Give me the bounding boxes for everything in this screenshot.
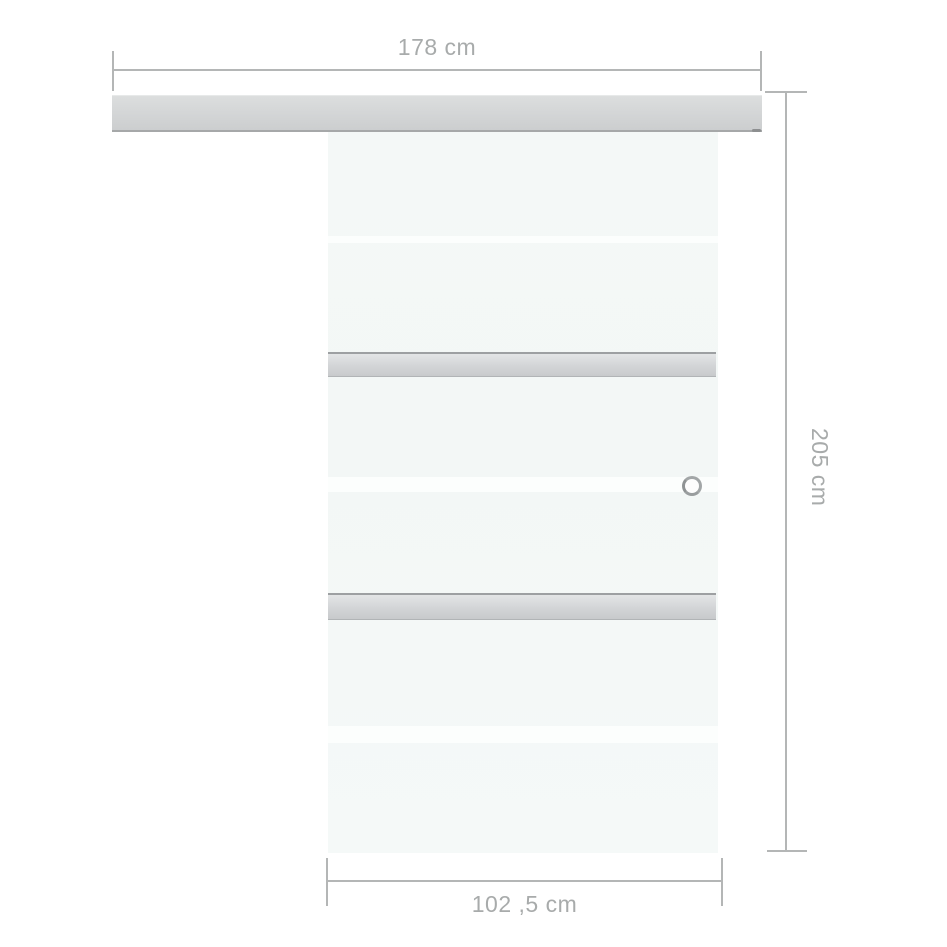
door-width-dimension-line [327,880,722,882]
door-height-dimension-line [785,92,787,851]
door-height-dimension-label: 205 cm [806,428,833,506]
track-width-dimension-tick-left [112,51,114,91]
track-width-dimension-label: 178 cm [112,34,762,61]
door-height-dimension-tick-bottom [767,850,807,852]
track-width-dimension-line [112,69,762,71]
track-end-shadow [752,129,761,132]
frosted-stripe [328,236,718,243]
door-height-dimension-tick-top [765,91,807,93]
door-knob-icon [682,476,702,496]
dimension-diagram: 178 cm 205 cm 102 ,5 cm [0,0,947,947]
door-width-dimension-label: 102 ,5 cm [327,891,722,918]
frosted-stripe [328,726,718,743]
track-width-dimension-tick-right [760,51,762,91]
sliding-track [112,95,762,132]
door-bar-lower [328,593,716,620]
frosted-stripe [328,477,718,492]
door-bar-upper [328,352,716,377]
